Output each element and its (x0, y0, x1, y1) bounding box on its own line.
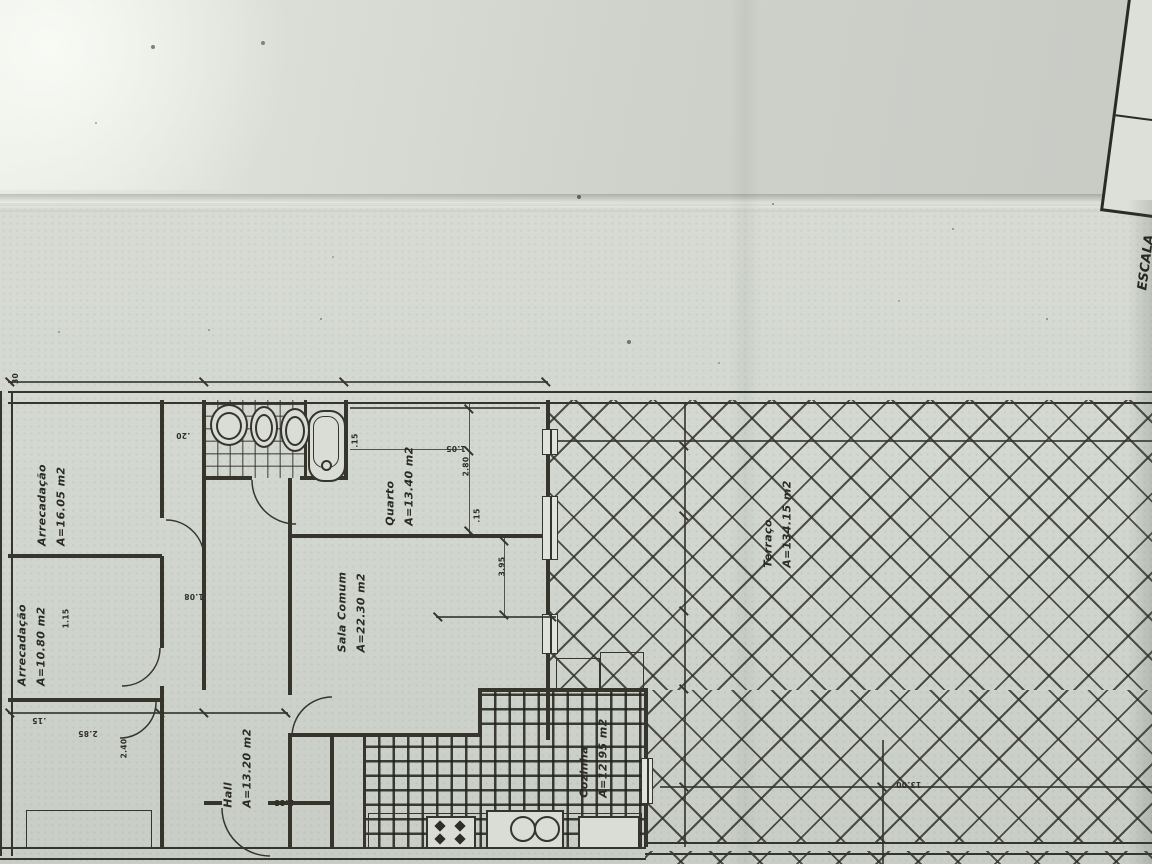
toilet-bowl-symbol (255, 414, 273, 442)
kitchen-sink-unit (486, 810, 564, 849)
room-label-terraco: Terraço A=134.15 m2 (759, 480, 796, 568)
stove-burner (454, 820, 465, 831)
door-arc-hall-sala (292, 697, 332, 737)
room-label-arrecadacao-mid: Arrecadação A=10.80 m2 (13, 604, 50, 686)
kitchen-cabinet (556, 658, 600, 690)
wall (160, 400, 164, 518)
dimension-label: 3.95 (497, 557, 506, 577)
sink-basin (510, 816, 536, 842)
room-label-hall: Hall A=13.20 m2 (219, 728, 256, 807)
dimension-label: 2.80 (461, 457, 470, 477)
dimension-label: 1.15 (61, 609, 70, 629)
kitchen-tile-floor-upper (482, 692, 644, 737)
wall (288, 735, 292, 847)
wall (330, 735, 334, 847)
stove-burner (434, 820, 445, 831)
dimension-label: 2.85 (274, 798, 294, 807)
wall (8, 554, 162, 558)
terrace-hatch-upper (550, 400, 1152, 690)
terrace-wall-bottom (645, 842, 1152, 855)
scanned-floor-plan-photo: Rinchoa Zona ESCALA 1:100 (0, 0, 1152, 864)
wall (546, 452, 550, 497)
wall (546, 400, 550, 430)
door-arc-storage-top (166, 520, 204, 558)
dimension-line (8, 381, 548, 383)
stove-burner (434, 833, 445, 844)
room-name: Arrecadação (15, 604, 28, 686)
kitchen-appliance (578, 816, 640, 849)
window (542, 429, 558, 455)
dimension-line (436, 616, 556, 618)
title-block-divider (1116, 114, 1152, 133)
room-name: Cozinha (577, 746, 590, 798)
kitchen-terrace-door-opening (641, 758, 653, 804)
wall (546, 557, 550, 615)
dimension-line (882, 740, 884, 864)
dimension-line (504, 538, 505, 618)
dimension-label: .20 (176, 431, 190, 440)
wall (363, 735, 366, 847)
outer-wall-left (0, 391, 13, 856)
wall (478, 690, 482, 737)
room-area: A=22.30 m2 (354, 573, 367, 652)
room-label-quarto: Quarto A=13.40 m2 (381, 446, 418, 525)
wall (546, 650, 550, 740)
room-area: A=134.15 m2 (780, 480, 793, 568)
photo-edge-shadow (1128, 200, 1152, 864)
room-name: Quarto (383, 480, 396, 525)
room-area: A=13.20 m2 (240, 728, 253, 807)
wall-inner-face (350, 407, 540, 409)
room-name: Sala Comum (335, 572, 348, 653)
dimension-label: .15 (473, 508, 482, 522)
dimension-label: 30 (11, 373, 20, 384)
bathtub-drain (321, 460, 332, 471)
room-area: A=10.80 m2 (34, 607, 47, 686)
door-arc-bathroom (252, 480, 296, 524)
room-area: A=16.05 m2 (54, 467, 67, 546)
dimension-line (684, 402, 686, 847)
dimension-line (8, 712, 288, 714)
dimension-label: .15 (32, 716, 46, 725)
terrace-ledge-line (558, 440, 1152, 442)
room-label-sala-comum: Sala Comum A=22.30 m2 (333, 572, 370, 653)
wall (160, 556, 164, 648)
sink-bowl-symbol (216, 412, 242, 440)
room-name: Terraço (761, 519, 774, 568)
light-glare (0, 0, 420, 190)
wall (206, 476, 252, 480)
stove-burner (454, 833, 465, 844)
bidet-bowl-symbol (285, 416, 305, 446)
dimension-label: 13.00 (896, 780, 921, 789)
terrace-hatch-lower (648, 690, 1152, 842)
stove-symbol (426, 816, 476, 849)
sink-basin (534, 816, 560, 842)
dimension-label: 2.40 (119, 739, 128, 759)
room-name: Hall (221, 782, 234, 808)
room-label-cozinha: Cozinha A=12.95 m2 (575, 718, 612, 797)
door-arc-room-bottom-left (120, 702, 156, 738)
outer-wall-top (8, 391, 1152, 404)
dimension-label: 2.85 (78, 729, 98, 738)
wall (160, 686, 164, 847)
room-area: A=12.95 m2 (596, 718, 609, 797)
dimension-label: .15 (351, 433, 360, 447)
room-label-arrecadacao-top: Arrecadação A=16.05 m2 (33, 464, 70, 546)
door-arc-hall-entrance (222, 808, 270, 856)
window (542, 496, 558, 560)
wall (288, 534, 548, 538)
room-area: A=13.40 m2 (402, 446, 415, 525)
room-name: Arrecadação (35, 464, 48, 546)
storage-inner-outline (26, 810, 152, 848)
door-arc-storage-mid (122, 648, 160, 686)
paper-fold-crease (0, 194, 1152, 212)
bath-shelf-line (206, 403, 306, 405)
dimension-label: 1.08 (184, 592, 204, 601)
kitchen-cabinet (600, 652, 644, 690)
dimension-label: 1.05 (446, 444, 466, 453)
paper-speckles (0, 0, 2, 2)
